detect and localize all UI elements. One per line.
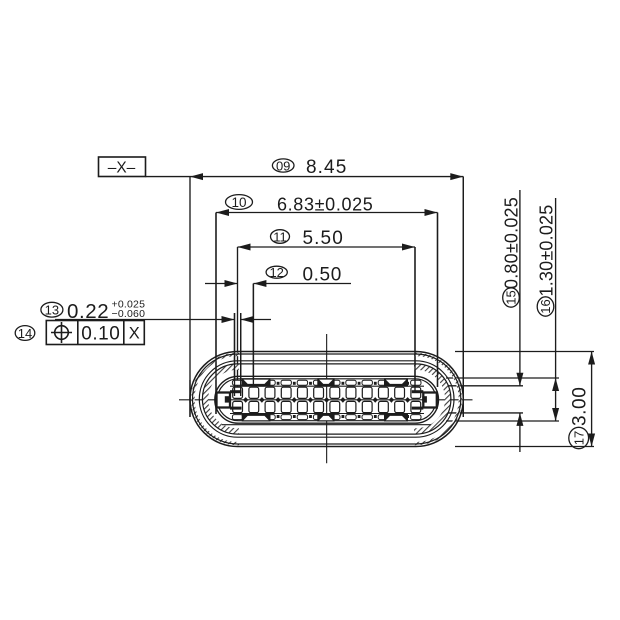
svg-text:−0.060: −0.060 bbox=[112, 308, 146, 320]
svg-text:13: 13 bbox=[45, 303, 59, 318]
svg-text:14: 14 bbox=[18, 326, 32, 341]
svg-text:0.50: 0.50 bbox=[303, 265, 342, 286]
svg-text:3.00: 3.00 bbox=[570, 387, 591, 426]
svg-text:0.22: 0.22 bbox=[67, 300, 109, 323]
svg-text:11: 11 bbox=[273, 229, 287, 244]
svg-text:16: 16 bbox=[538, 299, 553, 313]
svg-text:8.45: 8.45 bbox=[306, 157, 347, 178]
svg-text:10: 10 bbox=[231, 195, 246, 210]
svg-text:0.10: 0.10 bbox=[81, 323, 120, 344]
svg-text:09: 09 bbox=[276, 158, 290, 173]
svg-text:6.83±0.025: 6.83±0.025 bbox=[277, 195, 373, 215]
svg-text:12: 12 bbox=[269, 265, 283, 280]
svg-text:17: 17 bbox=[571, 431, 586, 445]
svg-text:1.30±0.025: 1.30±0.025 bbox=[537, 205, 557, 297]
svg-text:15: 15 bbox=[504, 290, 519, 304]
svg-text:5.50: 5.50 bbox=[303, 228, 344, 249]
svg-text:X: X bbox=[129, 325, 140, 343]
svg-text:–X–: –X– bbox=[108, 160, 136, 177]
svg-text:0.80±0.025: 0.80±0.025 bbox=[502, 197, 522, 289]
